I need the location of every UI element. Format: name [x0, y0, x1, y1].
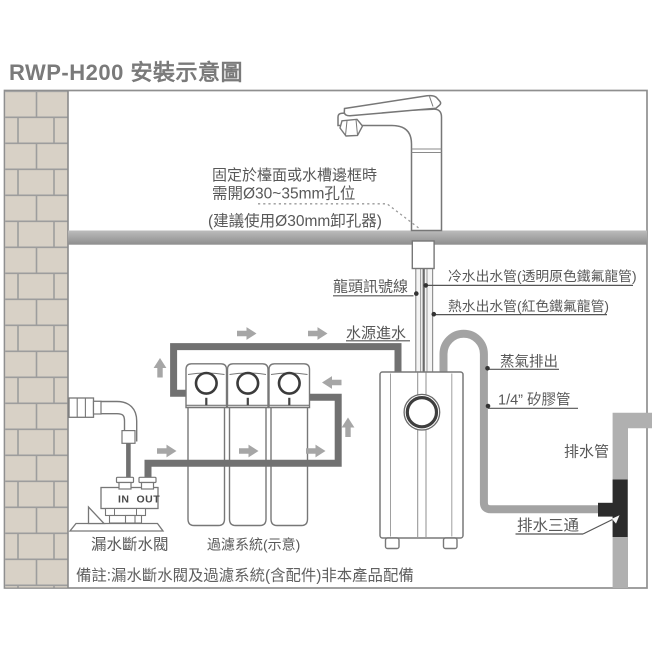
footnote: 備註:漏水斷水閥及過濾系統(含配件)非本產品配備: [76, 567, 414, 585]
faucet-shank: [412, 241, 434, 269]
installation-diagram: IN OUT RWP-H200 安裝示意圖 固定於檯面或水槽邊框時 需開Ø30~…: [0, 0, 654, 654]
valve-out-port: [139, 477, 156, 482]
mount-note-line2: 需開Ø30~35mm孔位: [212, 185, 355, 203]
installation-diagram-page: IN OUT RWP-H200 安裝示意圖 固定於檯面或水槽邊框時 需開Ø30~…: [0, 0, 654, 654]
filter1-cap-circle: [196, 373, 217, 394]
countertop: [68, 231, 647, 245]
filter-system-label: 過濾系統(示意): [207, 537, 300, 553]
machine-dial: [404, 394, 440, 430]
hot-water-out-label: 熱水出水管(紅色鐵氟龍管): [448, 298, 609, 314]
page-title: RWP-H200 安裝示意圖: [9, 60, 243, 85]
wall-fitting: [69, 398, 94, 417]
valve-in-label: IN: [118, 494, 130, 506]
filter2-cap-circle: [238, 373, 259, 394]
drain-tee-label: 排水三通: [517, 517, 580, 535]
water-source-in-label: 水源進水: [346, 325, 406, 342]
mount-note-line1: 固定於檯面或水槽邊框時: [212, 167, 377, 184]
under-sink-machine: [380, 372, 463, 549]
faucet-signal-cable-label: 龍頭訊號線: [333, 279, 408, 296]
drain-pipe-label: 排水管: [564, 444, 609, 461]
brick-wall: [5, 91, 68, 588]
machine-foot-left: [386, 538, 400, 549]
mount-note-line3: (建議使用Ø30mm卸孔器): [208, 212, 382, 230]
leak-stop-valve-label: 漏水斷水閥: [91, 536, 169, 554]
machine-foot-right: [444, 538, 458, 549]
valve-base-plate: [70, 524, 163, 532]
valve-out-label: OUT: [137, 494, 161, 506]
cold-water-out-label: 冷水出水管(透明原色鐵氟龍管): [448, 268, 637, 284]
filter3-cap-circle: [279, 373, 300, 394]
pipe-collar: [122, 431, 135, 444]
diagram-frame: [5, 91, 648, 589]
steam-exhaust-label: 蒸氣排出: [500, 354, 558, 371]
valve-in-port: [117, 477, 134, 482]
silicone-tube-label: 1/4” 矽膠管: [498, 392, 571, 409]
filter-system: [186, 364, 310, 526]
faucet-spout: [340, 119, 363, 136]
